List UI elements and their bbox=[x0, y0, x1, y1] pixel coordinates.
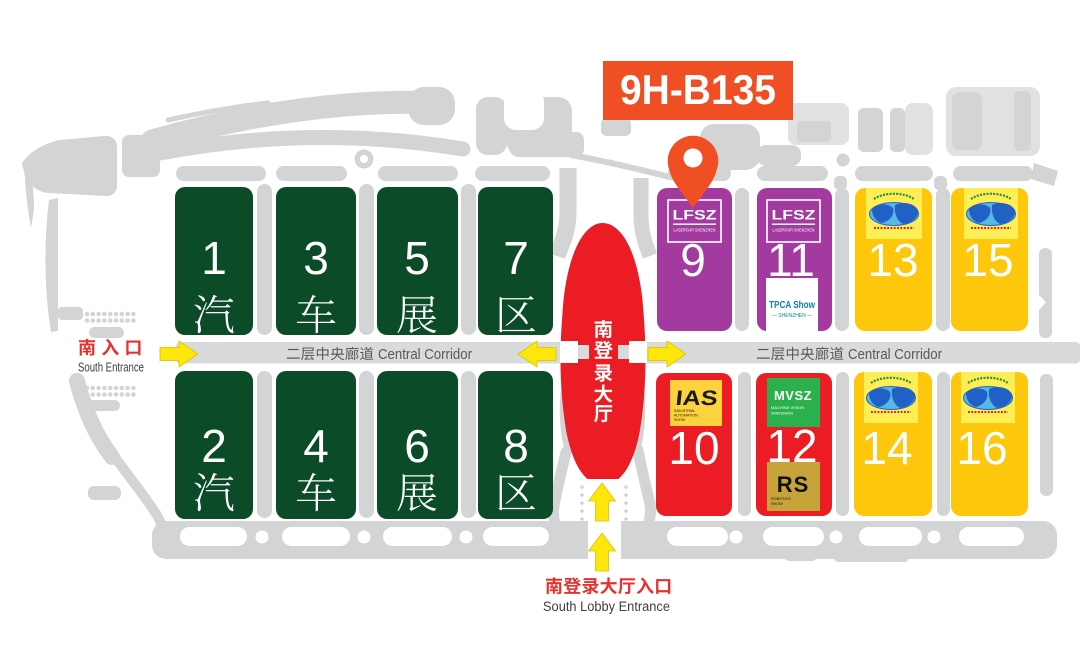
svg-text:South Entrance: South Entrance bbox=[78, 361, 144, 375]
svg-text:LASERFAIR SHENZHEN: LASERFAIR SHENZHEN bbox=[674, 228, 716, 233]
svg-text:3: 3 bbox=[303, 232, 329, 284]
svg-text:SHENZHEN: SHENZHEN bbox=[771, 411, 793, 416]
svg-text:— SHENZHEN —: — SHENZHEN — bbox=[772, 313, 812, 319]
svg-text:14: 14 bbox=[861, 422, 912, 474]
svg-text:13: 13 bbox=[867, 234, 918, 286]
svg-text:5: 5 bbox=[404, 232, 430, 284]
svg-text:7: 7 bbox=[503, 232, 529, 284]
svg-text:15: 15 bbox=[962, 234, 1013, 286]
svg-text:AUTOMATION: AUTOMATION bbox=[674, 414, 698, 418]
svg-text:ROBOTICS: ROBOTICS bbox=[771, 497, 791, 501]
svg-text:6: 6 bbox=[404, 420, 430, 472]
svg-text:SHOW: SHOW bbox=[674, 418, 686, 422]
svg-text:9H-B135: 9H-B135 bbox=[620, 66, 776, 113]
svg-text:TPCA Show: TPCA Show bbox=[769, 300, 815, 311]
svg-text:LASERFAIR SHENZHEN: LASERFAIR SHENZHEN bbox=[773, 228, 815, 233]
svg-text:SHOW: SHOW bbox=[771, 502, 783, 506]
svg-text:IAS: IAS bbox=[674, 387, 718, 410]
svg-text:INDUSTRIAL: INDUSTRIAL bbox=[674, 409, 695, 413]
svg-text:10: 10 bbox=[668, 422, 719, 474]
svg-text:LFSZ: LFSZ bbox=[772, 208, 816, 223]
svg-text:1: 1 bbox=[201, 232, 227, 284]
svg-text:RS: RS bbox=[777, 472, 810, 497]
svg-text:2: 2 bbox=[201, 420, 227, 472]
svg-text:South Lobby Entrance: South Lobby Entrance bbox=[543, 599, 670, 614]
svg-text:MACHINE VISION: MACHINE VISION bbox=[771, 405, 804, 410]
svg-text:4: 4 bbox=[303, 420, 329, 472]
svg-text:16: 16 bbox=[956, 422, 1007, 474]
svg-text:Central Corridor: Central Corridor bbox=[378, 346, 472, 363]
svg-text:8: 8 bbox=[503, 420, 529, 472]
svg-text:MVSZ: MVSZ bbox=[774, 388, 812, 403]
svg-text:LFSZ: LFSZ bbox=[673, 208, 717, 223]
svg-text:Central Corridor: Central Corridor bbox=[848, 346, 942, 363]
